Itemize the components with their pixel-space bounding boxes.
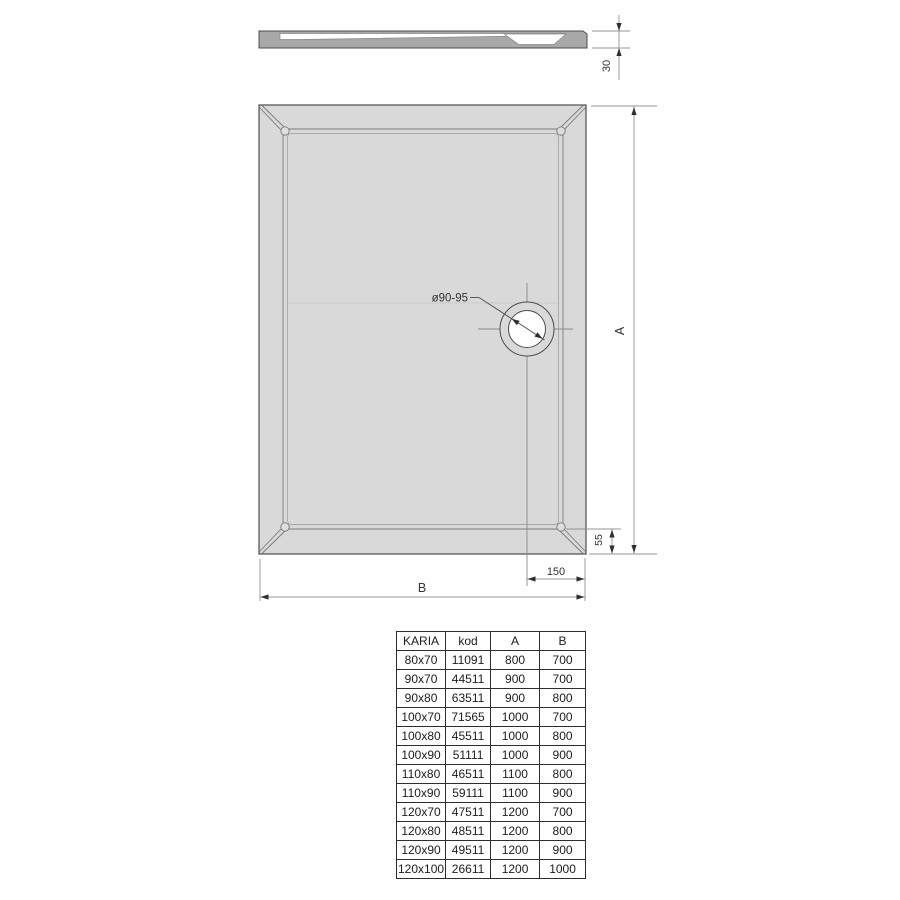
table-row: 80x70 11091 800 700 xyxy=(397,651,586,670)
a-cell: 1100 xyxy=(491,765,540,784)
technical-drawing-svg: 30 xyxy=(0,0,900,625)
side-view xyxy=(259,31,587,48)
a-cell: 1200 xyxy=(491,803,540,822)
code-cell: 51111 xyxy=(446,746,491,765)
table-row: 110x90 59111 1100 900 xyxy=(397,784,586,803)
col-header-kod: kod xyxy=(446,632,491,651)
code-cell: 44511 xyxy=(446,670,491,689)
size-cell: 100x90 xyxy=(397,746,446,765)
code-cell: 47511 xyxy=(446,803,491,822)
dimension-a-label: A xyxy=(613,326,627,335)
code-cell: 45511 xyxy=(446,727,491,746)
table-row: 100x80 45511 1000 800 xyxy=(397,727,586,746)
table-row: 110x80 46511 1100 800 xyxy=(397,765,586,784)
size-cell: 110x90 xyxy=(397,784,446,803)
col-header-a: A xyxy=(491,632,540,651)
size-cell: 120x90 xyxy=(397,841,446,860)
b-cell: 800 xyxy=(540,689,586,708)
b-cell: 700 xyxy=(540,708,586,727)
size-cell: 100x80 xyxy=(397,727,446,746)
table-row: 90x80 63511 900 800 xyxy=(397,689,586,708)
size-cell: 100x70 xyxy=(397,708,446,727)
a-cell: 1000 xyxy=(491,708,540,727)
code-cell: 11091 xyxy=(446,651,491,670)
size-table: KARIA kod A B 80x70 11091 800 700 90x70 … xyxy=(396,631,586,879)
table-row: 120x90 49511 1200 900 xyxy=(397,841,586,860)
technical-drawing-page: 30 xyxy=(0,0,900,900)
b-cell: 900 xyxy=(540,746,586,765)
dimension-55-label: 55 xyxy=(593,534,605,546)
code-cell: 71565 xyxy=(446,708,491,727)
b-cell: 800 xyxy=(540,822,586,841)
plan-view: ø90-95 xyxy=(259,105,586,586)
size-cell: 80x70 xyxy=(397,651,446,670)
b-cell: 1000 xyxy=(540,860,586,879)
a-cell: 1000 xyxy=(491,746,540,765)
code-cell: 59111 xyxy=(446,784,491,803)
code-cell: 26611 xyxy=(446,860,491,879)
a-cell: 1000 xyxy=(491,727,540,746)
col-header-b: B xyxy=(540,632,586,651)
size-cell: 120x80 xyxy=(397,822,446,841)
dimension-30-label: 30 xyxy=(601,60,613,72)
a-cell: 900 xyxy=(491,670,540,689)
size-cell: 110x80 xyxy=(397,765,446,784)
b-cell: 900 xyxy=(540,784,586,803)
table-header-row: KARIA kod A B xyxy=(397,632,586,651)
drain-diameter-label: ø90-95 xyxy=(432,293,468,305)
size-cell: 120x100 xyxy=(397,860,446,879)
size-cell: 90x80 xyxy=(397,689,446,708)
a-cell: 1200 xyxy=(491,860,540,879)
code-cell: 48511 xyxy=(446,822,491,841)
col-header-karia: KARIA xyxy=(397,632,446,651)
table-row: 120x70 47511 1200 700 xyxy=(397,803,586,822)
a-cell: 800 xyxy=(491,651,540,670)
code-cell: 49511 xyxy=(446,841,491,860)
a-cell: 1100 xyxy=(491,784,540,803)
dimension-150 xyxy=(527,558,585,601)
b-cell: 700 xyxy=(540,670,586,689)
a-cell: 1200 xyxy=(491,822,540,841)
a-cell: 900 xyxy=(491,689,540,708)
a-cell: 1200 xyxy=(491,841,540,860)
b-cell: 700 xyxy=(540,803,586,822)
code-cell: 63511 xyxy=(446,689,491,708)
size-cell: 120x70 xyxy=(397,803,446,822)
table-row: 100x70 71565 1000 700 xyxy=(397,708,586,727)
dimension-b-label: B xyxy=(418,581,426,595)
b-cell: 900 xyxy=(540,841,586,860)
code-cell: 46511 xyxy=(446,765,491,784)
b-cell: 800 xyxy=(540,727,586,746)
table-row: 120x100 26611 1200 1000 xyxy=(397,860,586,879)
dimension-150-label: 150 xyxy=(547,566,565,578)
table-row: 120x80 48511 1200 800 xyxy=(397,822,586,841)
b-cell: 700 xyxy=(540,651,586,670)
b-cell: 800 xyxy=(540,765,586,784)
table-row: 100x90 51111 1000 900 xyxy=(397,746,586,765)
table-row: 90x70 44511 900 700 xyxy=(397,670,586,689)
size-cell: 90x70 xyxy=(397,670,446,689)
